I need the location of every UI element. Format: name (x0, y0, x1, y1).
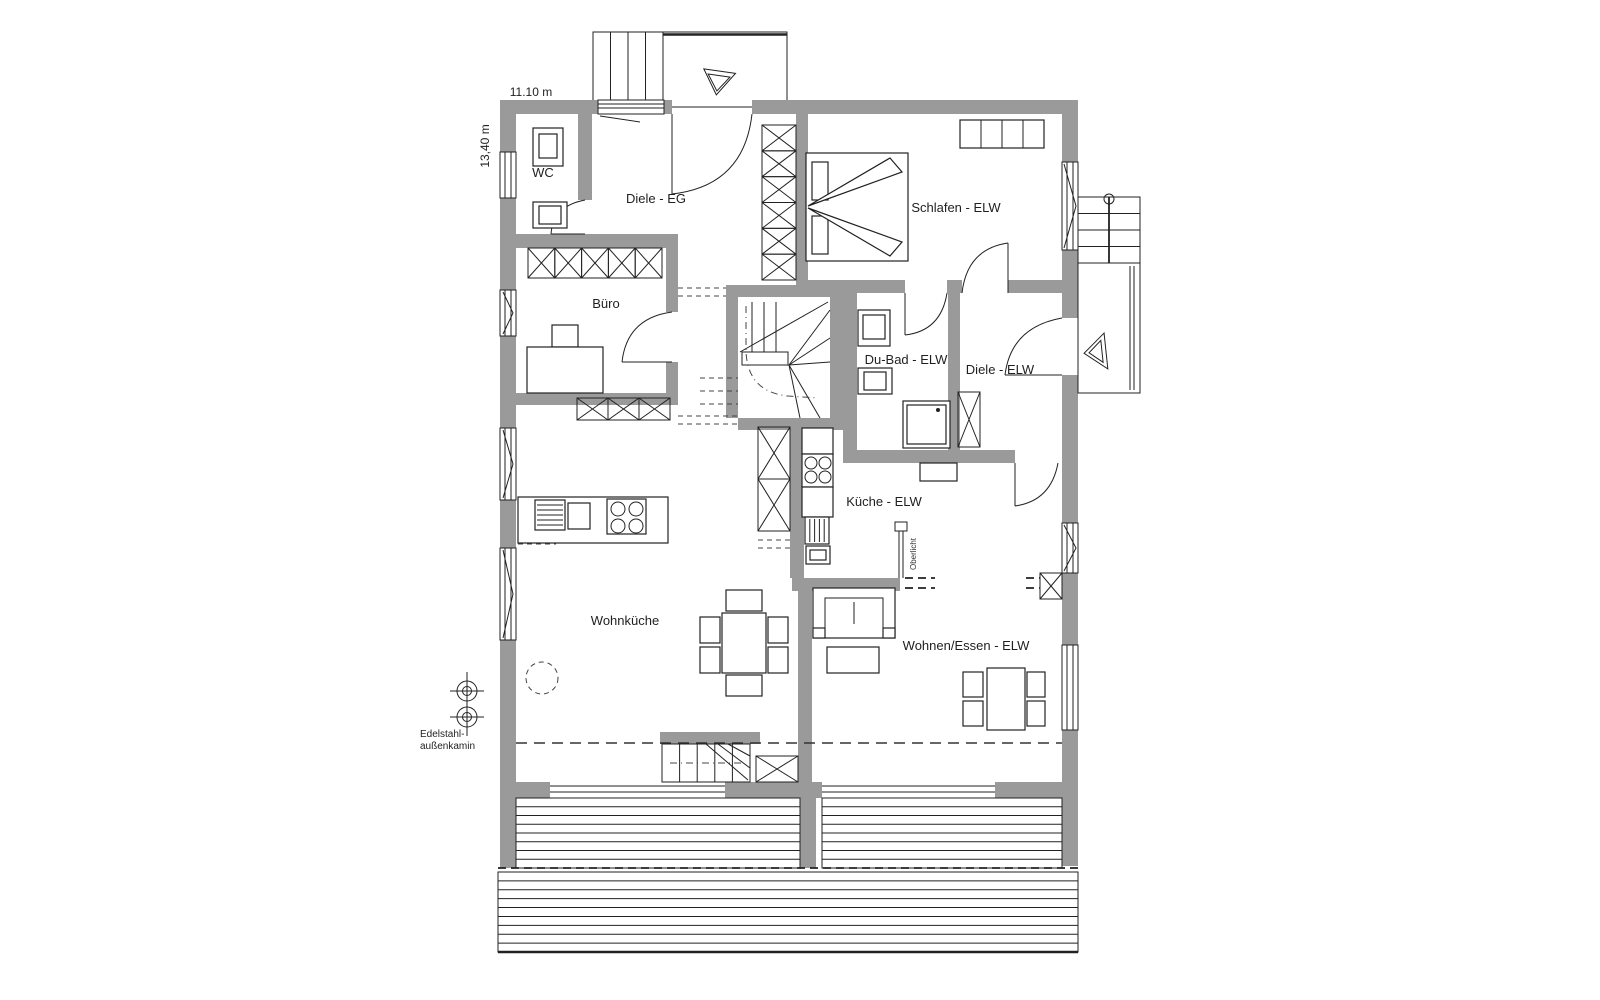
desk (527, 325, 603, 393)
wardrobe-diele-eg (762, 125, 796, 280)
room-label-dubad-elw: Du-Bad - ELW (865, 352, 949, 367)
lower-deck (498, 872, 1078, 952)
door-dubad (905, 293, 947, 335)
chimney-symbol-icon (450, 672, 484, 736)
cabinet-lower (756, 756, 798, 782)
window-wc (500, 152, 516, 198)
window-schlafen (1062, 162, 1078, 250)
external-stair (1078, 194, 1140, 393)
round-element-marker (526, 662, 558, 694)
entrance-porch (593, 32, 787, 107)
closet-schlafen (960, 120, 1044, 148)
terrace-deck-left (516, 798, 800, 868)
room-label-schlafen-elw: Schlafen - ELW (911, 200, 1001, 215)
annotation-chimney-1: Edelstahl- (420, 729, 464, 740)
coffee-table (827, 647, 879, 673)
dining-table-wohnkueche (700, 590, 788, 696)
window-wohnen-essen (1062, 645, 1078, 730)
dining-table-elw (963, 668, 1045, 730)
lower-staircase (662, 744, 750, 782)
sofa (813, 588, 895, 638)
floor-plan-drawing: 11.10 m 13,40 m WC Diele - EG Schlafen -… (0, 0, 1600, 1000)
main-staircase (740, 302, 830, 418)
oberlicht-element (895, 522, 907, 578)
room-label-diele-elw: Diele - ELW (966, 362, 1035, 377)
room-label-wc: WC (532, 165, 554, 180)
cabinet-diele-elw (958, 392, 980, 447)
room-label-buero: Büro (592, 296, 619, 311)
bed (806, 153, 908, 261)
annotation-oberlicht: Oberlicht (909, 537, 918, 570)
room-label-diele-eg: Diele - EG (626, 191, 686, 206)
entrance-arrow-icon (700, 69, 735, 97)
door-entrance (672, 114, 752, 194)
door-schlafen (962, 243, 1008, 293)
dimension-width: 11.10 m (510, 85, 552, 99)
room-label-wohnen-essen-elw: Wohnen/Essen - ELW (903, 638, 1030, 653)
closet-buero-top (528, 248, 662, 278)
exterior-walls (500, 100, 1078, 868)
dimension-depth: 13,40 m (478, 124, 492, 167)
cabinet-wohnen-essen (1040, 573, 1062, 599)
annotation-chimney-2: außenkamin (420, 741, 475, 752)
wohnkueche-counter (518, 497, 668, 543)
window-wohnkueche-1 (500, 428, 516, 500)
door-buero (622, 312, 672, 362)
room-label-kueche-elw: Küche - ELW (846, 494, 922, 509)
window-diele-elw (1062, 523, 1078, 573)
floor-plan-canvas: 11.10 m 13,40 m WC Diele - EG Schlafen -… (0, 0, 1600, 1000)
window-wohnkueche-2 (500, 548, 516, 640)
room-label-wohnkueche: Wohnküche (591, 613, 659, 628)
tall-cabinet-wohnkueche (758, 427, 790, 531)
dubad-fixtures (858, 310, 950, 448)
terrace-deck-right (822, 798, 1062, 868)
door-diele-wohnen (1015, 463, 1058, 506)
window-buero (500, 290, 516, 336)
